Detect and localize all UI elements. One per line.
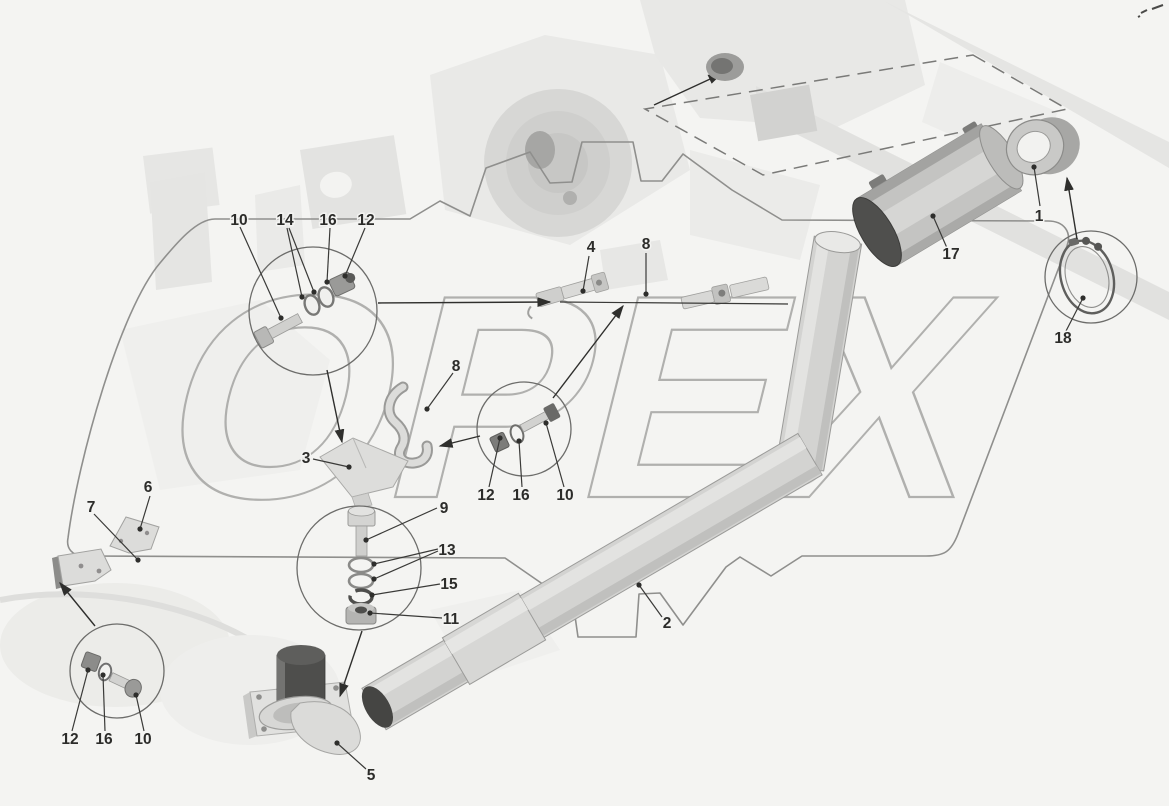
callout-10-bracket-bolt: 10: [134, 731, 151, 748]
callout-9-bolt: 9: [440, 500, 449, 517]
callout-10-joint-bolt: 10: [556, 487, 573, 504]
callout-8-strap-top: 8: [642, 236, 651, 253]
parts-diagram-page: ОРЕХ: [0, 0, 1169, 806]
flywheel-sketch: [484, 89, 632, 237]
bolt-stack-set: [346, 506, 376, 624]
callout-12-joint-nut: 12: [477, 487, 494, 504]
callout-7-bracket: 7: [87, 499, 96, 516]
callout-15-lock-washer: 15: [440, 576, 458, 593]
callout-5-elbow: 5: [367, 767, 376, 784]
callout-12-nut: 12: [357, 212, 374, 229]
callout-16-bracket-washer: 16: [95, 731, 113, 748]
callout-17-muffler: 17: [942, 246, 959, 263]
callout-16-joint-washer: 16: [512, 487, 530, 504]
callout-16-washer: 16: [319, 212, 337, 229]
callout-14-washers: 14: [276, 212, 294, 229]
callout-1-sleeve: 1: [1035, 208, 1044, 225]
callout-10-clamp: 10: [230, 212, 247, 229]
corner-marks: [1138, 5, 1163, 17]
callout-12-bracket-nut: 12: [61, 731, 78, 748]
callout-13-washers: 13: [438, 542, 456, 559]
callout-4-bracket: 4: [587, 239, 596, 256]
callout-6-bracket: 6: [144, 479, 153, 496]
callout-11-nut: 11: [443, 611, 460, 628]
callout-2-pipe: 2: [663, 615, 672, 632]
callout-18-band-clamp: 18: [1054, 330, 1072, 347]
exploded-parts-diagram: ОРЕХ: [0, 0, 1169, 806]
callout-3-plate: 3: [302, 450, 311, 467]
callout-8-saddle: 8: [452, 358, 461, 375]
